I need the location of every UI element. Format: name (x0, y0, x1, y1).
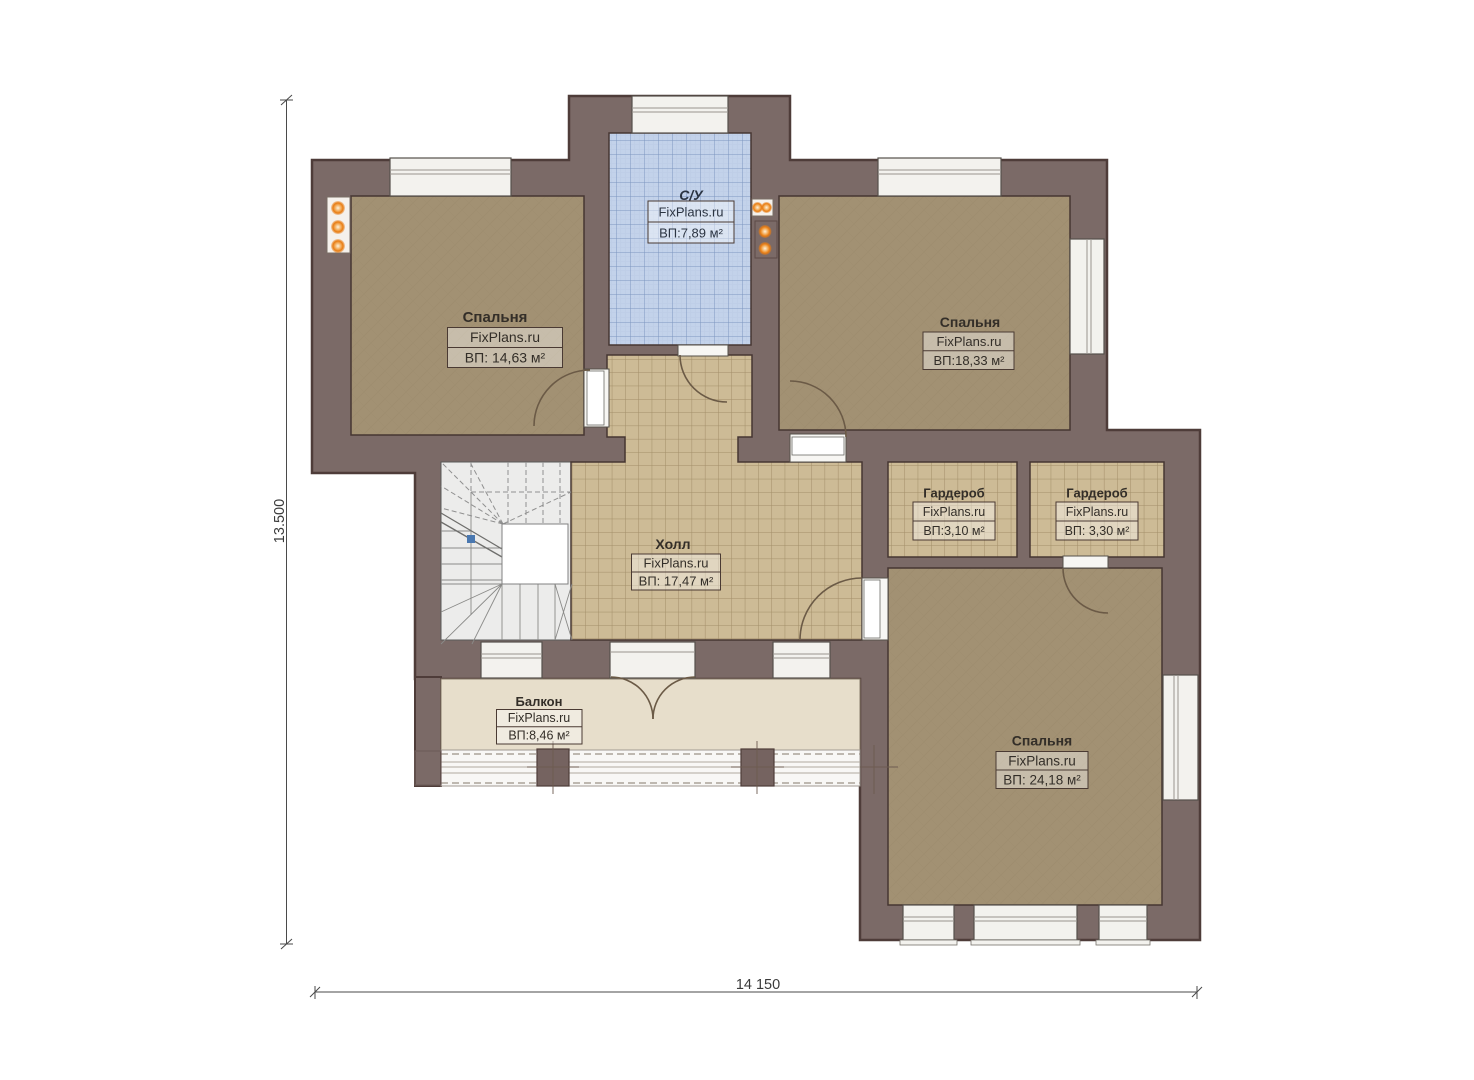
svg-text:FixPlans.ru: FixPlans.ru (1008, 754, 1076, 769)
svg-text:ВП: 14,63 м²: ВП: 14,63 м² (465, 350, 546, 366)
svg-text:Спальня: Спальня (463, 309, 528, 326)
svg-text:FixPlans.ru: FixPlans.ru (643, 556, 708, 571)
svg-text:FixPlans.ru: FixPlans.ru (658, 205, 723, 220)
svg-text:Спальня: Спальня (1012, 733, 1072, 749)
svg-text:ВП:18,33 м²: ВП:18,33 м² (933, 353, 1005, 368)
svg-text:13.500: 13.500 (272, 499, 288, 543)
svg-text:FixPlans.ru: FixPlans.ru (470, 329, 540, 345)
svg-text:Балкон: Балкон (516, 694, 563, 709)
svg-text:FixPlans.ru: FixPlans.ru (936, 334, 1001, 349)
svg-text:14 150: 14 150 (736, 977, 780, 993)
svg-text:ВП:7,89 м²: ВП:7,89 м² (659, 226, 723, 241)
svg-text:FixPlans.ru: FixPlans.ru (1066, 505, 1129, 519)
svg-text:ВП: 3,30 м²: ВП: 3,30 м² (1065, 524, 1130, 538)
svg-text:Холл: Холл (655, 536, 690, 552)
svg-text:ВП:3,10 м²: ВП:3,10 м² (923, 524, 984, 538)
svg-text:ВП: 17,47 м²: ВП: 17,47 м² (639, 574, 714, 589)
svg-text:Гардероб: Гардероб (923, 486, 984, 501)
svg-text:FixPlans.ru: FixPlans.ru (923, 505, 986, 519)
svg-text:ВП:8,46 м²: ВП:8,46 м² (508, 729, 569, 743)
svg-text:ВП: 24,18 м²: ВП: 24,18 м² (1003, 773, 1081, 788)
svg-text:Гардероб: Гардероб (1066, 486, 1127, 501)
svg-text:FixPlans.ru: FixPlans.ru (508, 711, 571, 725)
svg-text:Спальня: Спальня (940, 314, 1000, 330)
